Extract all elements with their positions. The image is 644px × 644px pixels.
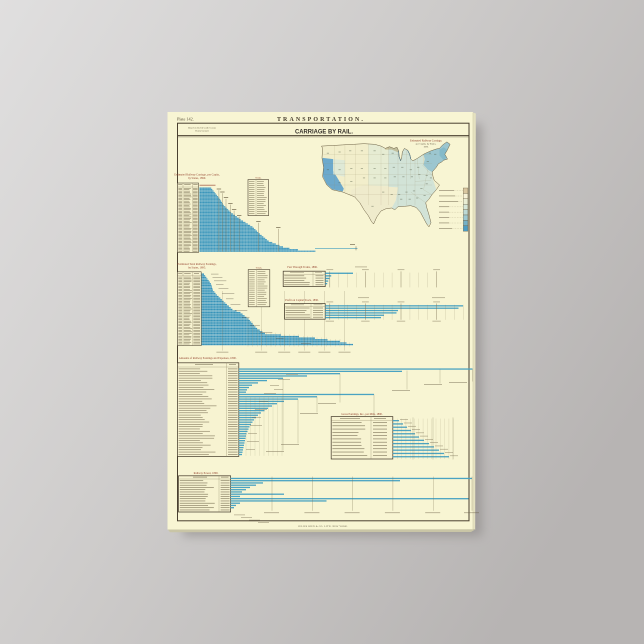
svg-text:Plate 142.: Plate 142. [177,117,194,122]
svg-text:1890.: 1890. [424,146,429,148]
svg-text:by States, 1890.: by States, 1890. [188,177,206,180]
svg-text:Profit on Capital Stock, 1890.: Profit on Capital Stock, 1890. [285,299,319,302]
svg-text:Railway Power, 1890.: Railway Power, 1890. [194,472,219,475]
svg-text:CARRIAGE BY RAIL.: CARRIAGE BY RAIL. [295,128,353,135]
svg-text:Totals.: Totals. [256,266,263,269]
svg-text:Fast Through Trains, 1896.: Fast Through Trains, 1896. [287,266,318,269]
svg-text:Gross Earnings, &c., per Mile,: Gross Earnings, &c., per Mile, 1890. [341,413,383,416]
svg-text:JULIUS BIEN & CO. LITH. NEW YO: JULIUS BIEN & CO. LITH. NEW YORK. [298,526,348,528]
svg-text:Based on the Eleventh Census: Based on the Eleventh Census [188,128,216,130]
svg-text:Amounts of Railway Earnings an: Amounts of Railway Earnings and Expenses… [179,357,237,360]
svg-text:per Capita, by States,: per Capita, by States, [416,143,437,146]
svg-text:Henry Gannett: Henry Gannett [195,131,209,133]
svg-text:Totals.: Totals. [255,176,262,179]
svg-text:TRANSPORTATION.: TRANSPORTATION. [277,116,365,123]
svg-text:by States, 1895.: by States, 1895. [188,267,206,270]
